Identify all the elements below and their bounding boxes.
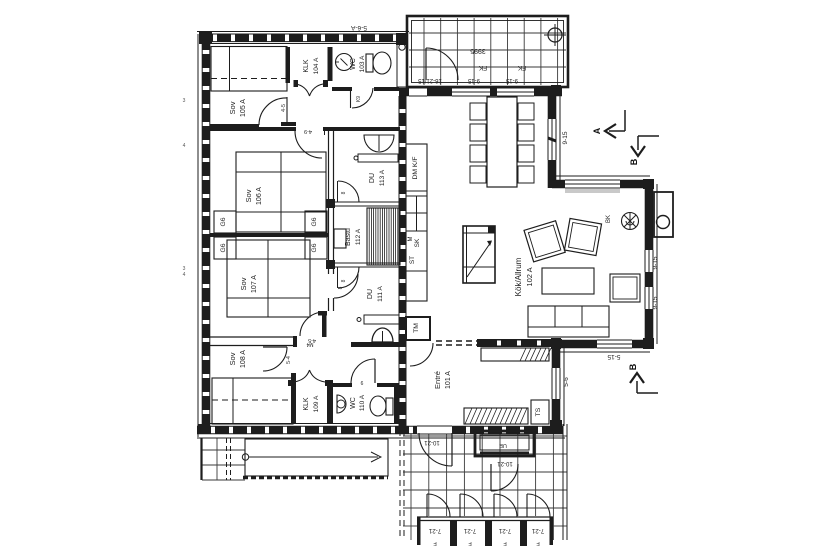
svg-text:9-15: 9-15 xyxy=(652,256,659,269)
svg-text:112 A: 112 A xyxy=(355,228,362,245)
svg-text:110 A: 110 A xyxy=(359,394,366,411)
svg-text:7-21: 7-21 xyxy=(463,527,476,534)
svg-text:TS: TS xyxy=(535,407,542,416)
svg-text:Kök/Allrum: Kök/Allrum xyxy=(514,257,523,296)
svg-text:5-15: 5-15 xyxy=(607,353,620,360)
svg-text:108 A: 108 A xyxy=(240,350,247,368)
svg-text:B: B xyxy=(628,363,638,370)
svg-text:9-15: 9-15 xyxy=(505,77,518,83)
svg-text:TM: TM xyxy=(413,323,420,333)
svg-text:101 A: 101 A xyxy=(445,371,452,389)
svg-text:A: A xyxy=(592,127,602,134)
svg-text:5-6-A: 5-6-A xyxy=(350,24,367,31)
svg-text:G6: G6 xyxy=(311,243,318,252)
svg-text:105 A: 105 A xyxy=(240,99,247,117)
svg-text:103 A: 103 A xyxy=(359,55,366,72)
svg-text:Bastu: Bastu xyxy=(345,228,352,246)
svg-text:ST: ST xyxy=(409,256,416,264)
svg-text:DM K/F: DM K/F xyxy=(412,156,419,179)
svg-text:9-15: 9-15 xyxy=(652,296,659,309)
svg-text:G6: G6 xyxy=(311,217,318,226)
svg-text:4: 4 xyxy=(183,143,186,149)
svg-text:8: 8 xyxy=(341,191,347,194)
svg-text:4: 4 xyxy=(183,272,186,278)
svg-text:7-21: 7-21 xyxy=(531,527,544,534)
svg-text:16-21/15: 16-21/15 xyxy=(417,77,441,83)
svg-text:111 A: 111 A xyxy=(377,286,384,302)
svg-text:KLK: KLK xyxy=(303,59,310,73)
svg-text:UE: UE xyxy=(499,442,507,448)
svg-text:9-15: 9-15 xyxy=(467,77,480,83)
svg-text:G6: G6 xyxy=(220,243,227,252)
svg-text:KLK: KLK xyxy=(303,397,310,411)
svg-text:FK: FK xyxy=(478,64,487,71)
svg-text:5-6: 5-6 xyxy=(563,377,570,387)
svg-text:WC: WC xyxy=(350,397,357,409)
svg-text:4-5: 4-5 xyxy=(308,337,316,343)
svg-text:K9: K9 xyxy=(356,96,362,102)
svg-text:8: 8 xyxy=(341,279,347,282)
svg-text:109 A: 109 A xyxy=(313,395,320,412)
svg-text:107 A: 107 A xyxy=(251,275,258,293)
svg-text:Sov: Sov xyxy=(228,101,237,114)
svg-text:FK: FK xyxy=(517,64,526,71)
svg-text:G6: G6 xyxy=(220,217,227,226)
svg-text:4-9: 4-9 xyxy=(304,128,312,134)
svg-text:Entré: Entré xyxy=(433,371,442,389)
svg-text:102 A: 102 A xyxy=(525,267,534,286)
svg-text:10-21: 10-21 xyxy=(497,460,513,466)
svg-text:5-4: 5-4 xyxy=(286,356,292,364)
svg-text:9: 9 xyxy=(360,379,363,385)
svg-text:WC: WC xyxy=(350,58,357,70)
svg-text:10-21: 10-21 xyxy=(424,439,440,445)
svg-text:DU: DU xyxy=(369,173,376,183)
svg-text:106 A: 106 A xyxy=(256,187,263,205)
svg-text:9-15: 9-15 xyxy=(562,131,569,144)
svg-text:7-21: 7-21 xyxy=(428,527,441,534)
svg-text:BK: BK xyxy=(606,215,612,223)
svg-text:SK: SK xyxy=(414,238,421,247)
svg-text:7-21: 7-21 xyxy=(498,527,511,534)
svg-text:Sov: Sov xyxy=(228,352,237,365)
svg-text:3: 3 xyxy=(183,98,186,104)
svg-text:3995: 3995 xyxy=(470,47,486,54)
svg-text:DU: DU xyxy=(367,289,374,299)
svg-text:113 A: 113 A xyxy=(379,169,386,186)
svg-text:8: 8 xyxy=(338,286,344,289)
svg-text:Sov: Sov xyxy=(239,277,248,290)
svg-text:104 A: 104 A xyxy=(313,57,320,74)
svg-text:Sov: Sov xyxy=(244,189,253,202)
svg-text:4-5: 4-5 xyxy=(281,104,287,112)
svg-text:B: B xyxy=(629,158,639,165)
